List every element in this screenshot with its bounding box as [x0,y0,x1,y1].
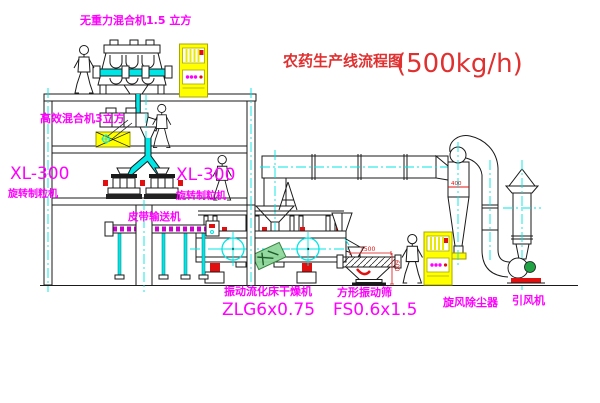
control-cabinet-2 [424,232,452,285]
label-screen-name: 方形振动筛 [337,285,392,299]
label-granulator-left-model: XL-300 [10,164,69,184]
induced-draft-fan [507,258,545,283]
granulator-red-fitting [103,180,108,186]
label-granulator-left-name: 旋转制粒机 [7,187,58,200]
granulator-left [106,168,142,199]
label-cyclone: 旋风除尘器 [442,295,499,309]
label-top-mixer: 无重力混合机1.5 立方 [79,13,191,27]
floor-slab-top [44,94,256,101]
label-fan: 引风机 [512,293,545,307]
belt-conveyor [105,221,219,279]
fan-motor [525,262,536,273]
diagram-title: 农药生产线流程图 [282,52,403,70]
fan-base [511,278,541,283]
granulator-right [144,168,180,199]
overhead-duct [256,150,452,236]
rotary-valve [451,253,466,259]
label-dryer-model: ZLG6x0.75 [222,300,315,320]
label-belt-conveyor: 皮带输送机 [127,210,181,223]
cyclone-cylinder [448,162,469,197]
diagram-canvas: 400 [0,0,600,403]
mixer-shaft [96,69,170,76]
label-dryer-name: 振动流化床干燥机 [224,284,312,298]
cyclone-dim-text: 400 [451,181,462,187]
label-granulator-right-model: XL-300 [176,165,235,185]
process-flow-diagram: 400 [0,0,600,403]
screen-width-dim: 600 [393,260,400,272]
label-mid-mixer: 高效混合机3立方 [40,111,125,125]
gravity-free-mixer [93,40,172,94]
screen-length-dim: 1500 [360,246,375,253]
label-screen-model: FS0.6x1.5 [333,300,417,320]
worker-ground [402,235,422,283]
diagram-title-capacity: (500kg/h) [396,49,523,79]
worker-top-floor [74,46,94,94]
granulator-red-fitting [140,180,145,186]
label-granulator-right-name: 旋转制粒机 [175,189,226,202]
control-cabinet-1 [180,44,208,97]
screen-deck [342,257,396,267]
mixer-discharge-funnel [124,85,148,94]
